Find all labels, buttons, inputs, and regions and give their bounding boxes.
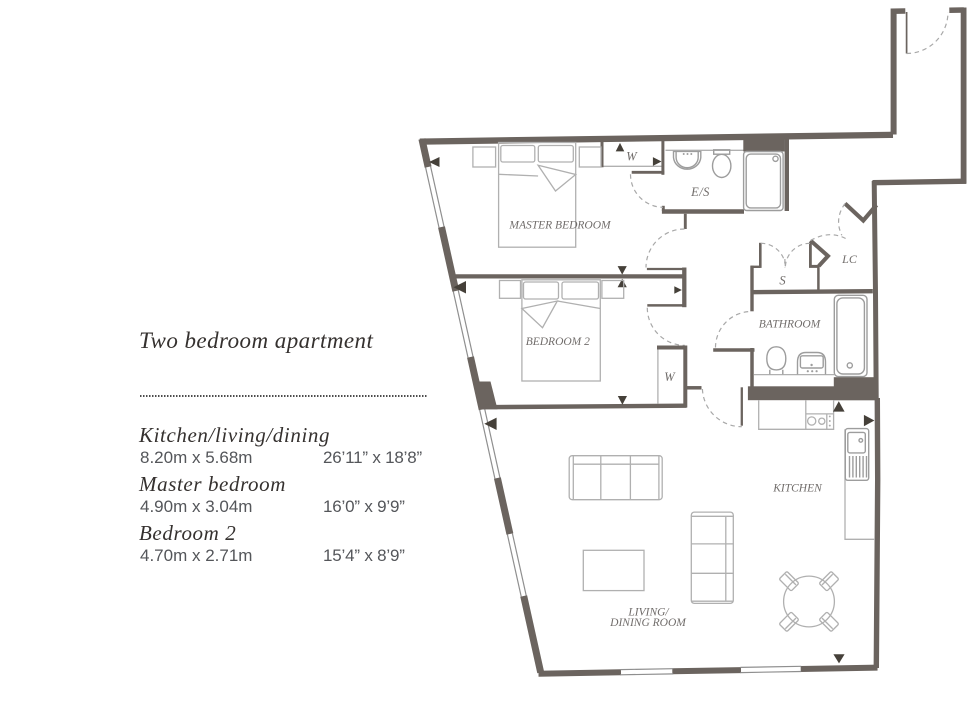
svg-text:S: S — [779, 274, 786, 288]
svg-text:W: W — [626, 149, 638, 163]
svg-text:E/S: E/S — [690, 185, 710, 199]
svg-text:DINING ROOM: DINING ROOM — [609, 617, 687, 629]
svg-text:BEDROOM 2: BEDROOM 2 — [526, 336, 590, 348]
svg-text:W: W — [664, 370, 676, 384]
svg-text:BATHROOM: BATHROOM — [759, 318, 822, 330]
svg-text:LC: LC — [841, 252, 858, 266]
svg-text:KITCHEN: KITCHEN — [772, 483, 823, 495]
svg-text:MASTER BEDROOM: MASTER BEDROOM — [508, 219, 612, 231]
